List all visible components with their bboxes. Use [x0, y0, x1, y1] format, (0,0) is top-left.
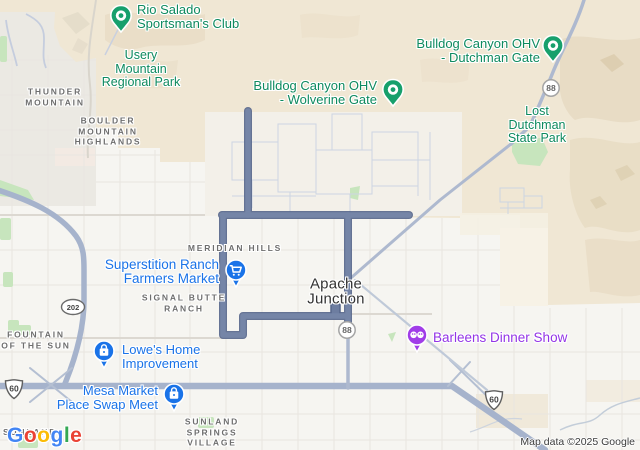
area-label-fountain-of-the-sun: FOUNTAIN OF THE SUN: [1, 330, 70, 351]
poi-label-lowes[interactable]: Lowe's Home Improvement: [122, 343, 200, 371]
map-viewport[interactable]: 88 88 202 60 60 Rio Salado Sportsman's C…: [0, 0, 640, 450]
pin-dot-icon: [551, 43, 556, 48]
poi-label-dutchman-gate[interactable]: Bulldog Canyon OHV - Dutchman Gate: [416, 37, 540, 64]
route-88-shield-north: 88: [541, 78, 561, 98]
pin-body-icon: [226, 260, 246, 280]
area-label-sunland-springs-village: SUNLAND SPRINGS VILLAGE: [185, 416, 239, 448]
poi-label-rio-salado[interactable]: Rio Salado Sportsman's Club: [137, 3, 239, 30]
svg-text:60: 60: [9, 384, 19, 394]
map-attribution[interactable]: Map data ©2025 Google: [520, 436, 635, 448]
city-label-apache-junction[interactable]: Apache Junction: [307, 278, 364, 307]
green-poi-pin-wolverine-gate[interactable]: [380, 78, 406, 108]
pin-body-icon: [407, 325, 427, 345]
route-202-shield: 202: [60, 298, 86, 316]
svg-text:202: 202: [67, 303, 80, 312]
purple-poi-pin-barleens[interactable]: [404, 324, 430, 354]
park-label-lost-dutchman[interactable]: Lost Dutchman State Park: [508, 105, 566, 146]
area-label-thunder-mountain: THUNDER MOUNTAIN: [25, 87, 85, 108]
us-60-shield-west: 60: [3, 378, 25, 400]
blue-poi-pin-lowes[interactable]: [91, 340, 117, 370]
poi-label-wolverine-gate[interactable]: Bulldog Canyon OHV - Wolverine Gate: [253, 79, 377, 106]
green-poi-pin-rio-salado[interactable]: [108, 4, 134, 34]
park-label-usery-mountain[interactable]: Usery Mountain Regional Park: [102, 49, 181, 90]
blue-poi-pin-mesa-market[interactable]: [161, 383, 187, 413]
green-poi-pin-dutchman-gate[interactable]: [540, 34, 566, 64]
area-label-signal-butte-ranch: SIGNAL BUTTE RANCH: [142, 293, 226, 314]
route-88-shield-south: 88: [337, 320, 357, 340]
blue-poi-pin-superstition-market[interactable]: [223, 259, 249, 289]
google-logo[interactable]: Google: [7, 424, 82, 448]
svg-text:60: 60: [489, 395, 499, 405]
pin-dot-icon: [119, 13, 124, 18]
svg-text:88: 88: [546, 83, 556, 93]
us-60-shield-east: 60: [483, 389, 505, 411]
svg-text:88: 88: [342, 325, 352, 335]
poi-label-barleens[interactable]: Barleens Dinner Show: [433, 330, 567, 345]
poi-label-mesa-market[interactable]: Mesa Market Place Swap Meet: [57, 384, 158, 412]
poi-label-superstition-market[interactable]: Superstition Ranch Farmers Market: [105, 258, 219, 286]
area-label-boulder-mountain-highlands: BOULDER MOUNTAIN HIGHLANDS: [75, 115, 142, 147]
pin-dot-icon: [391, 87, 396, 92]
area-label-meridian-hills: MERIDIAN HILLS: [188, 243, 282, 254]
